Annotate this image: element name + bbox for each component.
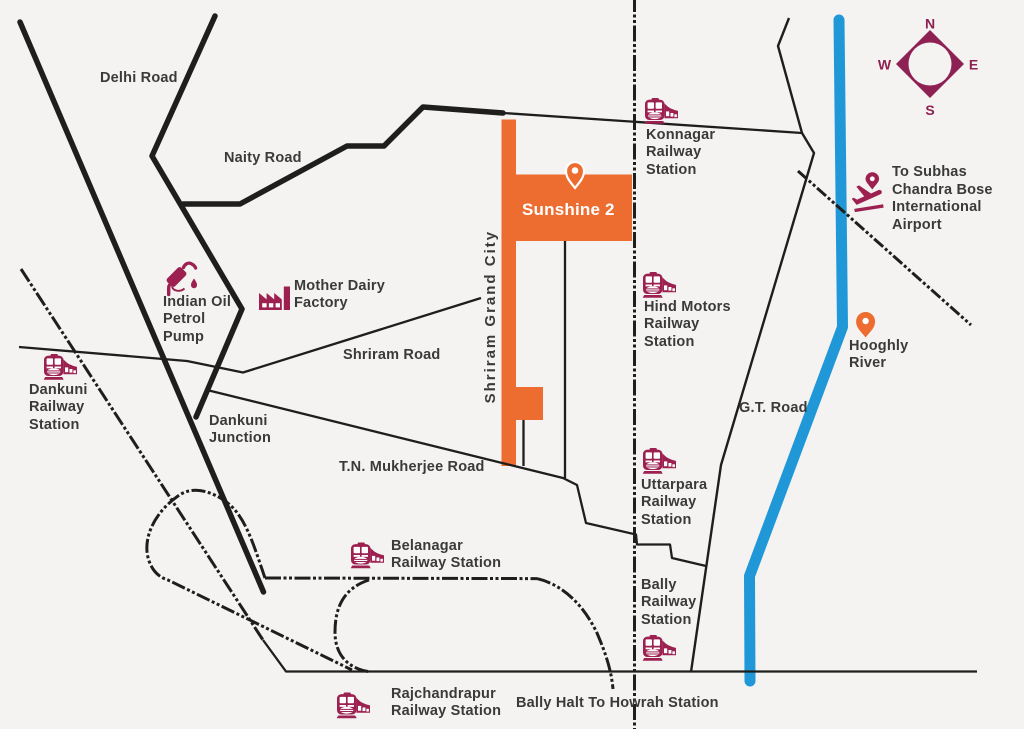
svg-text:N: N bbox=[925, 16, 935, 32]
svg-text:E: E bbox=[969, 57, 978, 73]
svg-text:S: S bbox=[925, 102, 934, 118]
svg-text:W: W bbox=[878, 57, 892, 73]
